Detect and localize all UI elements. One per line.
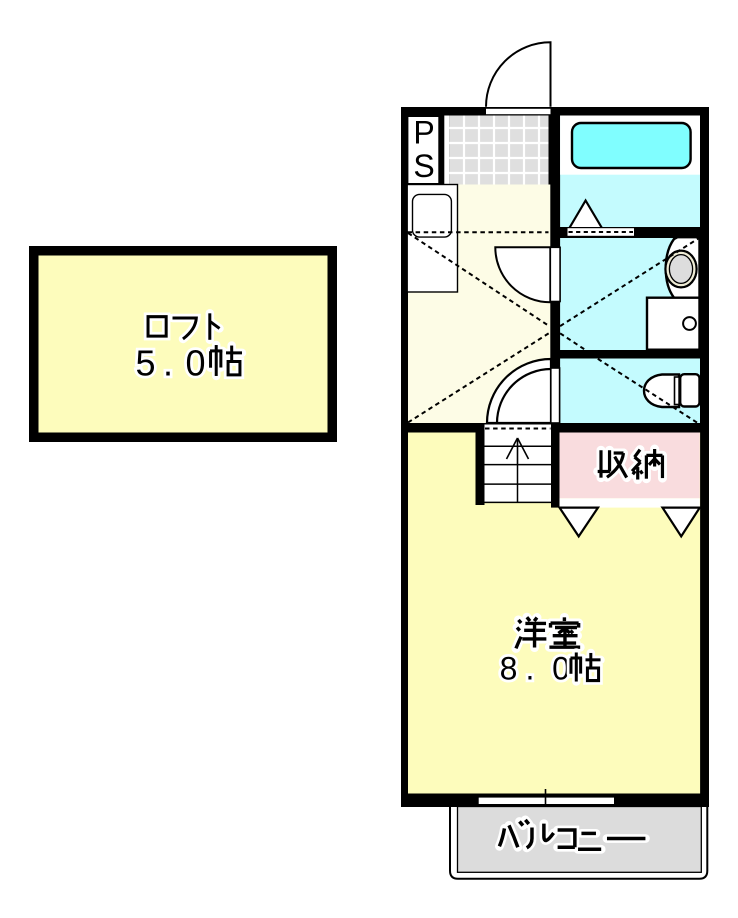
svg-text:8: 8 (500, 651, 518, 687)
svg-text:P: P (413, 115, 434, 151)
svg-text:.: . (163, 343, 173, 384)
svg-text:5: 5 (135, 343, 155, 384)
svg-text:.: . (526, 651, 535, 687)
svg-text:S: S (413, 148, 434, 184)
svg-text:0: 0 (185, 343, 205, 384)
